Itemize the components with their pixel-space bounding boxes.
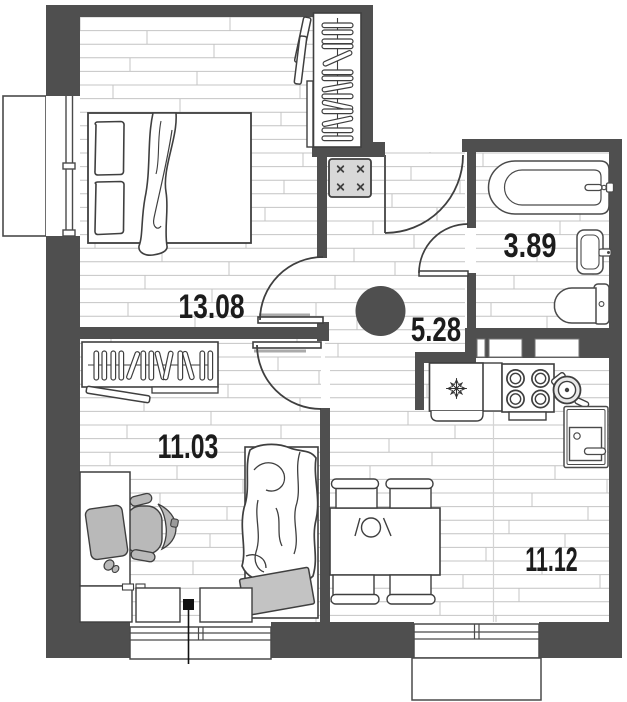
svg-text:13.08: 13.08 bbox=[178, 288, 244, 326]
svg-text:3.89: 3.89 bbox=[504, 226, 557, 265]
svg-text:11.03: 11.03 bbox=[158, 428, 219, 466]
svg-text:5.28: 5.28 bbox=[411, 312, 461, 349]
svg-text:11.12: 11.12 bbox=[525, 541, 577, 579]
